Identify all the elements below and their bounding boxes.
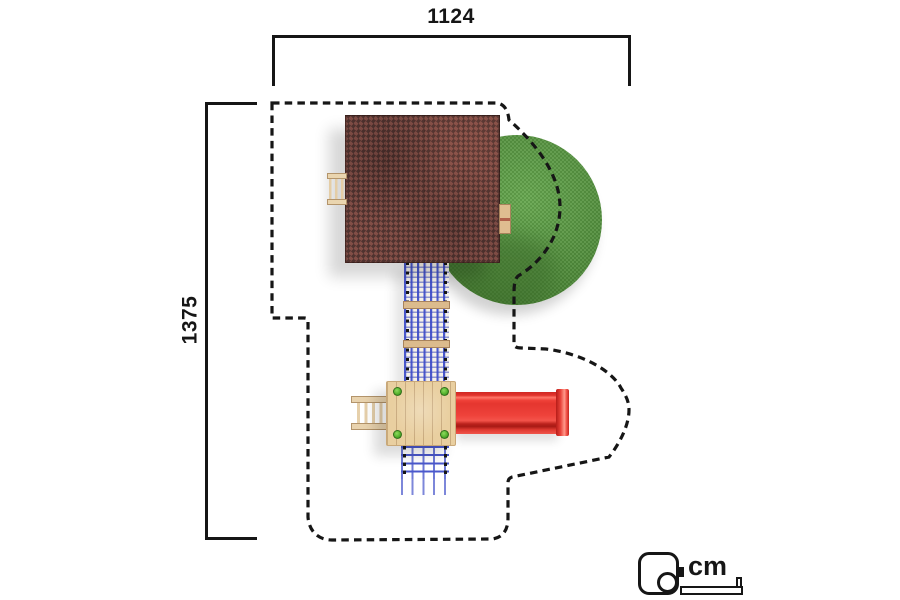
dimension-width-label: 1124 xyxy=(391,5,511,31)
dimension-width-tick-left xyxy=(272,35,275,86)
dimension-width-tick-right xyxy=(628,35,631,86)
net-knots-right xyxy=(444,446,447,479)
dimension-height-label: 1375 xyxy=(158,289,222,351)
screw-icon xyxy=(393,430,402,439)
screw-icon xyxy=(440,430,449,439)
measuring-tape-icon xyxy=(638,552,679,595)
slide xyxy=(456,392,558,434)
platform xyxy=(386,381,456,446)
tape-blade-icon xyxy=(680,586,743,595)
unit-legend: cm xyxy=(630,545,760,600)
screw-icon xyxy=(440,387,449,396)
handrail-slats xyxy=(329,179,346,199)
dimension-width-line xyxy=(272,35,631,38)
net-knots-right xyxy=(444,262,447,383)
handrail-rail xyxy=(327,199,347,205)
climbing-net-lower xyxy=(401,446,449,479)
climbing-net-lower-ropes xyxy=(401,479,449,495)
playground-plan-canvas: 1124 1375 xyxy=(0,0,900,600)
climbing-net-upper xyxy=(404,262,449,383)
net-wooden-rung xyxy=(403,301,450,309)
tape-exit-icon xyxy=(678,567,684,577)
net-wooden-rung xyxy=(403,340,450,348)
tape-reel-icon xyxy=(657,572,678,593)
dimension-height-tick-bottom xyxy=(205,537,257,540)
net-knots-left xyxy=(406,262,409,383)
unit-label: cm xyxy=(688,551,758,585)
roof-handrail xyxy=(327,172,347,207)
roof-step xyxy=(499,204,511,234)
playhouse-roof xyxy=(345,115,500,263)
screw-icon xyxy=(393,387,402,396)
net-knots-left xyxy=(403,446,406,479)
slide-end-cap xyxy=(556,389,569,436)
dimension-height-tick-top xyxy=(205,102,257,105)
